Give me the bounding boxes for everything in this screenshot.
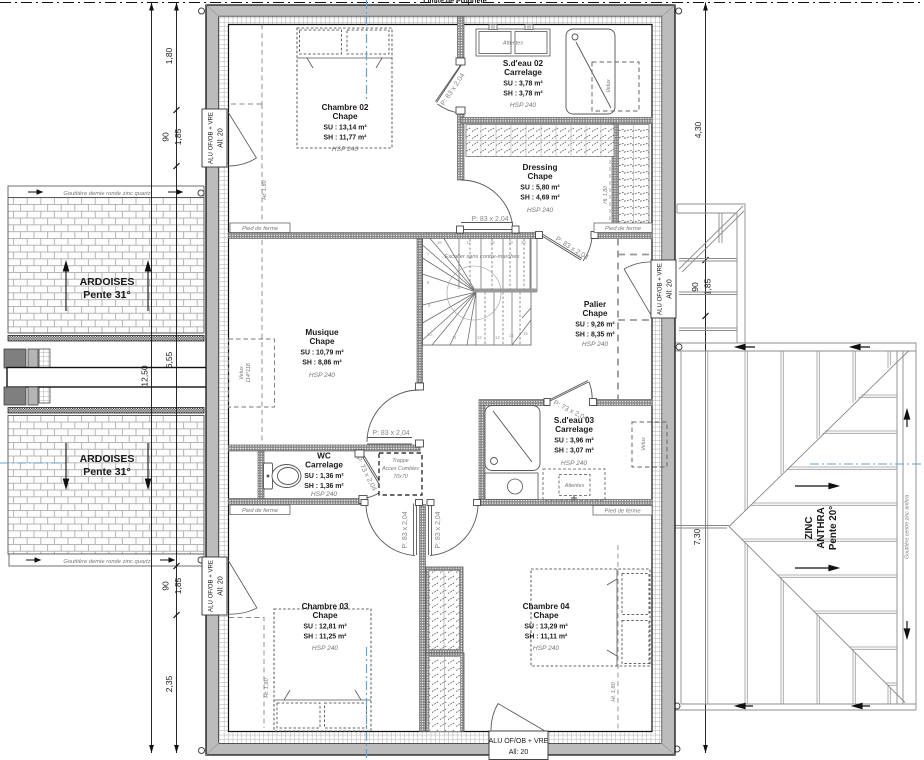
- svg-text:Carrelage: Carrelage: [305, 461, 343, 470]
- svg-text:SH : 8,86 m²: SH : 8,86 m²: [302, 360, 342, 367]
- svg-text:SU : 13,14 m²: SU : 13,14 m²: [323, 125, 367, 132]
- svg-text:Pente 20°: Pente 20°: [828, 506, 839, 550]
- svg-text:All: 20: All: 20: [218, 576, 225, 596]
- svg-text:SH : 11,25 m²: SH : 11,25 m²: [304, 634, 348, 641]
- svg-text:ARDOISES: ARDOISES: [80, 276, 135, 288]
- svg-text:Carrelage: Carrelage: [504, 68, 542, 77]
- svg-text:Limite de Propriété: Limite de Propriété: [423, 0, 487, 5]
- svg-text:HSP 240: HSP 240: [312, 645, 338, 652]
- svg-text:All: 20: All: 20: [218, 128, 225, 148]
- svg-text:7,30: 7,30: [692, 528, 702, 545]
- svg-text:Velux: Velux: [239, 366, 245, 380]
- svg-text:4,30: 4,30: [693, 121, 703, 138]
- svg-text:14: 14: [509, 333, 514, 338]
- svg-text:SH : 11,11 m²: SH : 11,11 m²: [525, 634, 568, 641]
- svg-text:ALU OF/OB + VRE: ALU OF/OB + VRE: [208, 560, 215, 612]
- svg-text:P: 83 x 2,04: P: 83 x 2,04: [402, 511, 409, 548]
- svg-text:HSP 240: HSP 240: [561, 460, 587, 467]
- svg-text:Gouttière demie ronde zinc qua: Gouttière demie ronde zinc quartz: [63, 191, 150, 197]
- svg-text:70x70: 70x70: [393, 474, 407, 480]
- svg-text:11: 11: [452, 335, 457, 340]
- svg-text:WC: WC: [317, 452, 331, 461]
- svg-text:1,85: 1,85: [703, 278, 713, 295]
- svg-text:Pied de ferme: Pied de ferme: [242, 226, 279, 232]
- svg-text:SU : 3,78 m²: SU : 3,78 m²: [503, 81, 543, 88]
- svg-text:HSP 240: HSP 240: [332, 146, 358, 153]
- svg-text:ALU OF/OB + VRE: ALU OF/OB + VRE: [489, 738, 549, 745]
- svg-text:2,35: 2,35: [164, 675, 174, 692]
- svg-text:Pied de ferme: Pied de ferme: [605, 226, 642, 232]
- svg-text:Velux: Velux: [606, 79, 612, 93]
- svg-text:SH : 3,78 m²: SH : 3,78 m²: [503, 91, 543, 98]
- svg-text:HSP 240: HSP 240: [309, 372, 335, 379]
- svg-text:SU : 3,96 m²: SU : 3,96 m²: [554, 438, 594, 445]
- svg-text:10: 10: [427, 332, 432, 337]
- svg-text:S.d'eau 02: S.d'eau 02: [503, 59, 544, 68]
- svg-text:Pied de ferme: Pied de ferme: [242, 508, 279, 514]
- svg-text:17: 17: [466, 240, 471, 245]
- svg-text:SU : 12,81 m²: SU : 12,81 m²: [303, 624, 347, 631]
- svg-text:ZINC: ZINC: [804, 517, 815, 540]
- svg-text:HSP 240: HSP 240: [533, 645, 559, 652]
- svg-text:SU : 13,29 m²: SU : 13,29 m²: [524, 624, 568, 631]
- svg-text:90: 90: [161, 132, 171, 142]
- svg-text:Pied de ferme: Pied de ferme: [604, 509, 641, 515]
- svg-text:All: 20: All: 20: [667, 279, 674, 299]
- svg-text:Chape: Chape: [582, 309, 607, 318]
- svg-text:SU : 10,79 m²: SU : 10,79 m²: [300, 350, 344, 357]
- svg-text:Chape: Chape: [533, 611, 558, 620]
- svg-text:P: 83 x 2,04: P: 83 x 2,04: [471, 216, 508, 223]
- svg-text:SU : 1,36 m²: SU : 1,36 m²: [304, 473, 344, 480]
- svg-text:ALU OF/OB + VRE: ALU OF/OB + VRE: [208, 112, 215, 164]
- svg-text:Ht. 1,80: Ht. 1,80: [611, 681, 617, 701]
- svg-text:Dressing: Dressing: [522, 163, 557, 172]
- svg-text:S.d'eau 03: S.d'eau 03: [554, 416, 595, 425]
- svg-text:Trappe: Trappe: [392, 458, 408, 464]
- svg-text:15: 15: [523, 331, 528, 336]
- svg-text:Chambre 04: Chambre 04: [523, 602, 570, 611]
- svg-text:Gouttière centre zinc anthra: Gouttière centre zinc anthra: [905, 495, 911, 559]
- svg-text:SH : 4,69 m²: SH : 4,69 m²: [520, 195, 560, 202]
- svg-text:1,85: 1,85: [173, 577, 183, 594]
- svg-text:SU : 9,26 m²: SU : 9,26 m²: [575, 322, 615, 329]
- svg-text:HSP 240: HSP 240: [510, 102, 536, 109]
- svg-text:Escalier sans contre-marches: Escalier sans contre-marches: [445, 254, 520, 260]
- svg-text:SH : 1,36 m²: SH : 1,36 m²: [304, 483, 344, 490]
- svg-text:Ht: 1,80: Ht: 1,80: [264, 677, 270, 697]
- svg-text:Pente 31°: Pente 31°: [83, 466, 130, 478]
- svg-text:Gouttière demie ronde zinc qua: Gouttière demie ronde zinc quartz: [63, 559, 150, 565]
- svg-text:Ht: 1,80: Ht: 1,80: [262, 179, 268, 199]
- svg-text:HSP 240: HSP 240: [311, 491, 337, 498]
- svg-text:Velux: Velux: [641, 437, 647, 451]
- svg-text:1,85: 1,85: [173, 128, 183, 145]
- svg-text:19: 19: [508, 240, 513, 245]
- svg-text:16: 16: [437, 240, 442, 245]
- svg-text:SH : 11,77 m²: SH : 11,77 m²: [324, 135, 368, 142]
- svg-text:SU : 5,80 m²: SU : 5,80 m²: [520, 185, 560, 192]
- svg-text:SH : 8,35 m²: SH : 8,35 m²: [575, 332, 615, 339]
- svg-text:Ht. 1,80: Ht. 1,80: [603, 186, 609, 204]
- svg-text:1,80: 1,80: [164, 47, 174, 64]
- svg-text:13: 13: [495, 335, 500, 340]
- svg-text:Pente 31°: Pente 31°: [83, 289, 130, 301]
- svg-text:Palier: Palier: [584, 300, 607, 309]
- svg-text:Carrelage: Carrelage: [555, 425, 593, 434]
- svg-text:20: 20: [521, 240, 526, 245]
- svg-text:12,50: 12,50: [140, 365, 150, 387]
- svg-text:P: 83 x 2,04: P: 83 x 2,04: [435, 511, 442, 548]
- svg-text:Chambre 03: Chambre 03: [302, 602, 349, 611]
- svg-text:90: 90: [690, 282, 700, 292]
- svg-text:18: 18: [490, 240, 495, 245]
- svg-text:ALU OF/OB + VRE: ALU OF/OB + VRE: [657, 263, 664, 315]
- svg-text:Chape: Chape: [309, 337, 334, 346]
- svg-text:All: 20: All: 20: [509, 749, 529, 756]
- svg-text:HSP 240: HSP 240: [527, 207, 553, 214]
- svg-text:Musique: Musique: [305, 328, 339, 337]
- svg-text:ARDOISES: ARDOISES: [80, 453, 135, 465]
- svg-text:HSP 240: HSP 240: [582, 341, 608, 348]
- svg-text:12: 12: [477, 335, 482, 340]
- svg-text:90: 90: [161, 581, 171, 591]
- svg-text:Chape: Chape: [527, 172, 552, 181]
- svg-text:Acces Combles: Acces Combles: [381, 466, 419, 472]
- svg-text:Chape: Chape: [312, 611, 337, 620]
- svg-text:Attentes: Attentes: [564, 483, 585, 489]
- svg-text:6,55: 6,55: [164, 351, 174, 368]
- svg-text:SH : 3,07 m²: SH : 3,07 m²: [554, 448, 594, 455]
- svg-text:P: 83 x 2,04: P: 83 x 2,04: [372, 430, 409, 437]
- svg-text:Chambre 02: Chambre 02: [322, 103, 369, 112]
- svg-text:ANTHRA: ANTHRA: [816, 507, 827, 548]
- svg-text:114*118: 114*118: [246, 362, 252, 383]
- svg-text:Attentes: Attentes: [502, 41, 523, 47]
- svg-text:Chape: Chape: [332, 112, 357, 121]
